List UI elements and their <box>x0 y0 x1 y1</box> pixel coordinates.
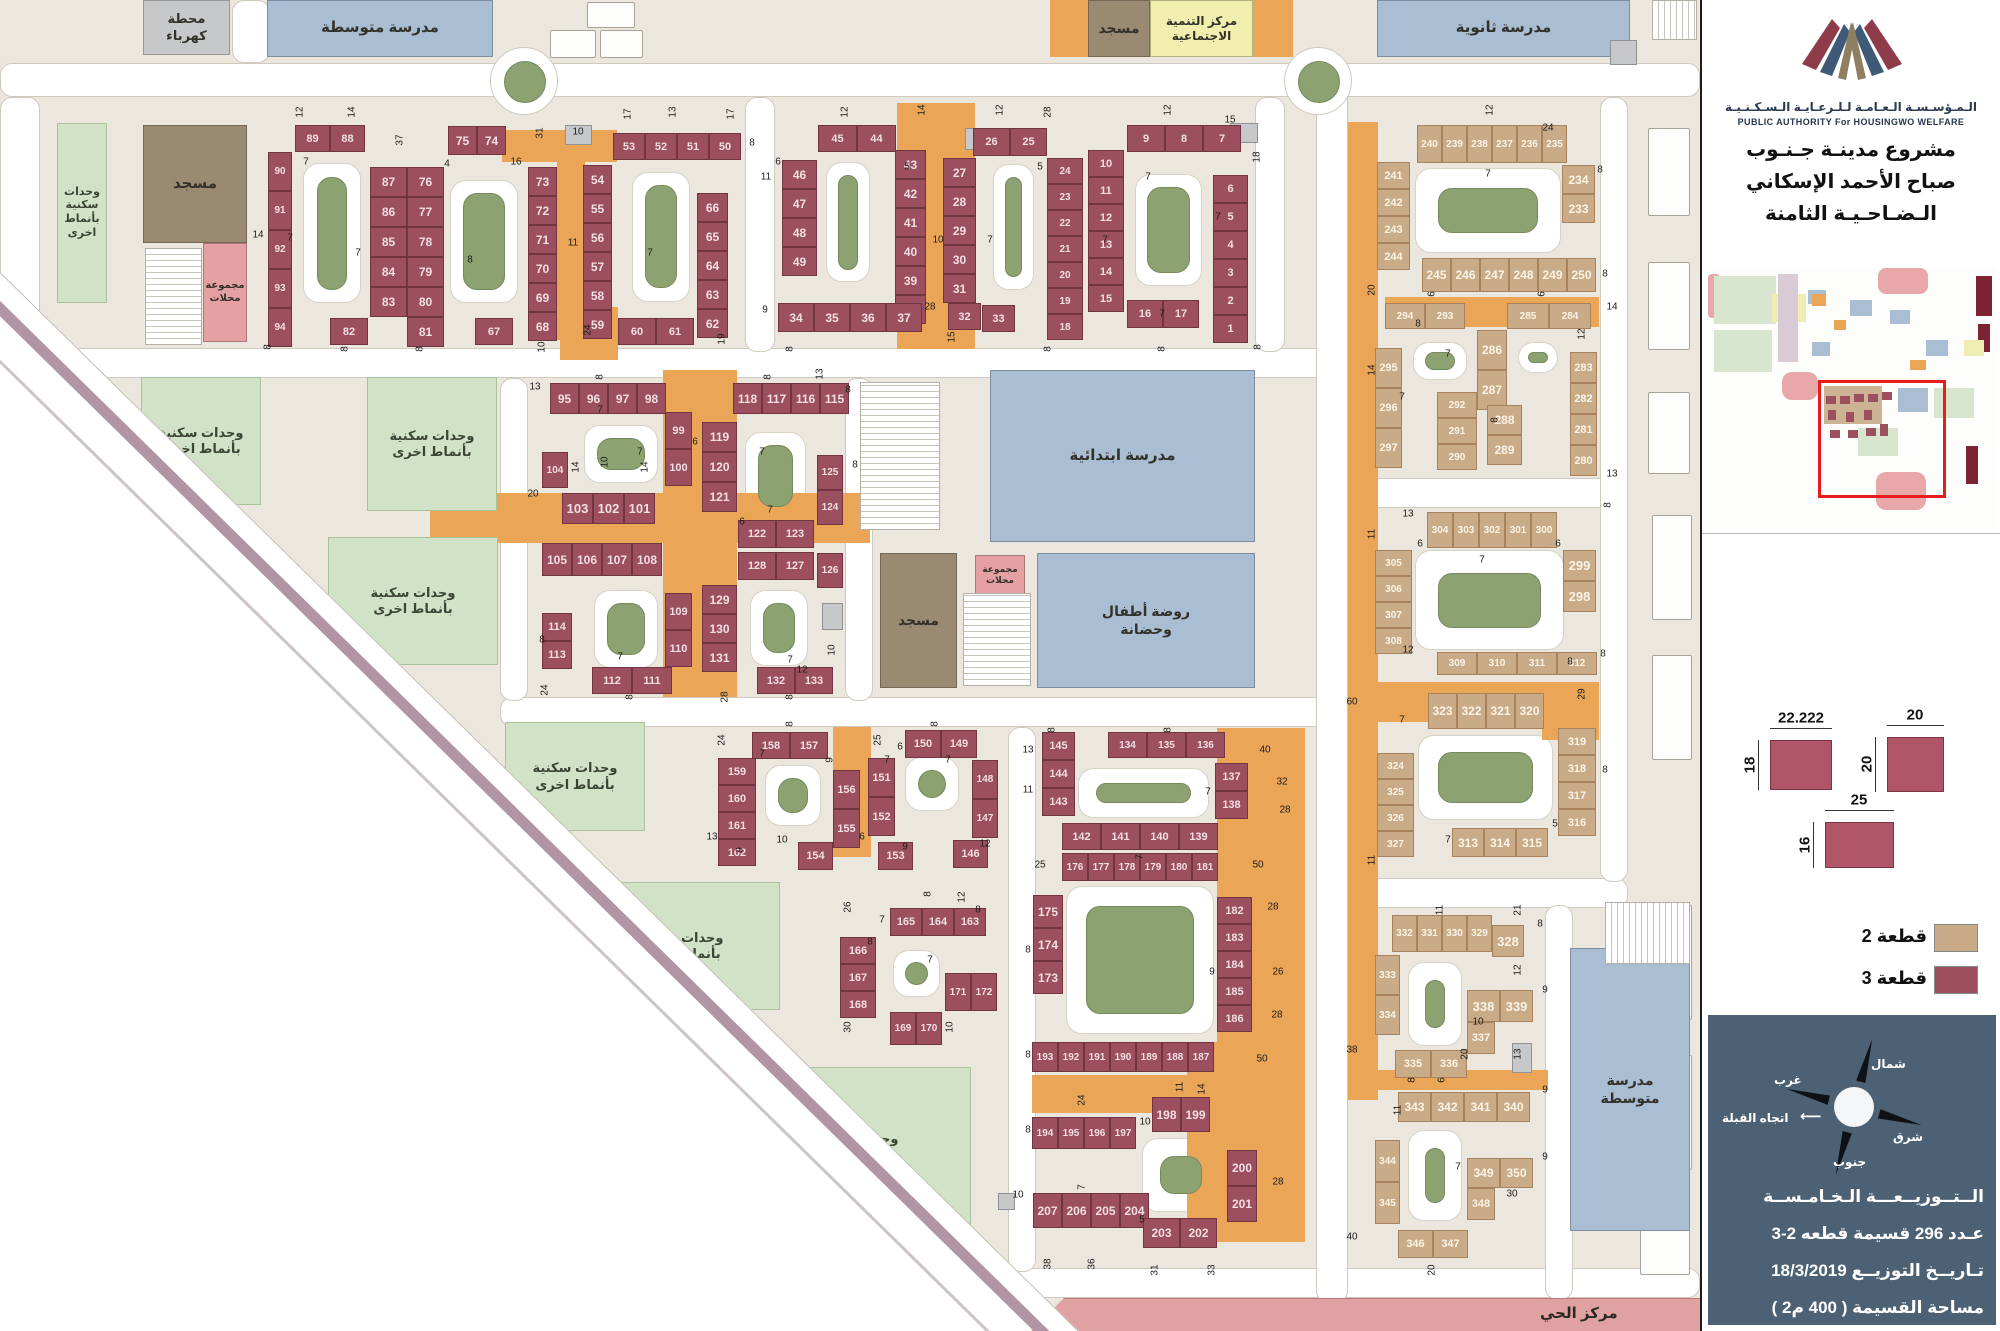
dimension-label: 14 <box>1197 1083 1208 1094</box>
minimap-block <box>1834 320 1846 330</box>
minimap-block <box>1966 446 1978 484</box>
plot-26: 26 <box>973 128 1010 156</box>
overview-minimap[interactable] <box>1708 268 1996 530</box>
plot-164: 164 <box>922 908 954 936</box>
dimension-label: 14 <box>252 230 263 241</box>
plot-40: 40 <box>895 237 926 266</box>
plot-195: 195 <box>1058 1117 1084 1149</box>
dimension-label: 7 <box>884 755 890 766</box>
park-green-icon <box>905 962 928 985</box>
plot-237: 237 <box>1492 125 1517 163</box>
plot-11: 11 <box>1088 177 1124 204</box>
plot-17: 17 <box>1163 300 1199 328</box>
dimension-label: 7 <box>1399 715 1405 726</box>
plot-22: 22 <box>1047 210 1083 236</box>
plot-12: 12 <box>1088 204 1124 231</box>
minimap-block <box>1926 340 1948 356</box>
plot-201: 201 <box>1227 1186 1257 1222</box>
plot-132: 132 <box>757 667 795 694</box>
dimension-label: 11 <box>1175 1082 1186 1092</box>
compass-label-south: جنوب <box>1833 1155 1866 1169</box>
dimension-label: 8 <box>1047 727 1058 733</box>
dimension-label: 7 <box>1445 835 1451 846</box>
dimension-label: 7 <box>945 755 951 766</box>
minimap-block <box>1850 300 1872 316</box>
dimension-label: 12 <box>1402 645 1413 656</box>
dimension-label: 8 <box>1597 165 1603 176</box>
plot-167: 167 <box>840 964 876 991</box>
plot-21: 21 <box>1047 236 1083 262</box>
plot-185: 185 <box>1217 978 1252 1005</box>
plot-39: 39 <box>895 266 926 295</box>
dimension-label: 6 <box>775 157 781 168</box>
plot-329: 329 <box>1467 915 1492 952</box>
roundabout-green-icon <box>1298 61 1340 103</box>
plot-119: 119 <box>702 422 737 452</box>
minimap-block <box>1890 310 1910 324</box>
plot-307: 307 <box>1375 602 1412 628</box>
dim-width-3: 25 <box>1851 792 1868 809</box>
plot-175: 175 <box>1033 895 1063 928</box>
dimension-label: 7 <box>879 915 885 926</box>
plot-238: 238 <box>1467 125 1492 163</box>
plot-109: 109 <box>665 593 692 630</box>
plot-120: 120 <box>702 452 737 482</box>
facility-school: مدرسة ثانوية <box>1377 0 1630 57</box>
plot-79: 79 <box>407 257 444 287</box>
plot-96: 96 <box>579 383 608 414</box>
dimension-label: 7 <box>355 248 361 259</box>
plot-98: 98 <box>637 383 666 414</box>
park-green-icon <box>1160 1156 1202 1194</box>
plot-106: 106 <box>572 543 602 576</box>
plot-314: 314 <box>1484 828 1516 857</box>
park-green-icon <box>607 603 645 655</box>
plot-207: 207 <box>1033 1193 1062 1228</box>
dimension-label: 13 <box>1022 745 1033 756</box>
plot-44: 44 <box>857 125 896 152</box>
plot-321: 321 <box>1486 693 1515 729</box>
plot-192: 192 <box>1058 1042 1084 1072</box>
plot-293: 293 <box>1425 303 1465 329</box>
dimension-label: 8 <box>1253 344 1264 350</box>
dimension-label: 6 <box>1417 539 1423 550</box>
plot-317: 317 <box>1558 782 1596 809</box>
project-title-line-2: صباح الأحمد الإسكاني <box>1702 166 2000 198</box>
plot-10: 10 <box>1088 150 1124 177</box>
plot-346: 346 <box>1398 1230 1433 1258</box>
plot-328: 328 <box>1492 925 1524 957</box>
park-green-icon <box>778 778 808 813</box>
roundabout <box>490 47 558 115</box>
dimension-label: 20 <box>1427 1264 1438 1275</box>
plot-327: 327 <box>1377 831 1414 857</box>
org-name-arabic: الـمـؤسـسـة الـعـامـة لـلـرعـايـة الـسـك… <box>1702 100 2000 114</box>
plot-172: 172 <box>971 973 997 1011</box>
plot-157: 157 <box>790 732 828 759</box>
dimension-label: 8 <box>1415 319 1421 330</box>
plot-341: 341 <box>1464 1092 1497 1122</box>
dimension-label: 8 <box>867 937 873 948</box>
dim-width-2: 20 <box>1907 707 1924 724</box>
plot-75: 75 <box>448 126 477 155</box>
dimension-label: 7 <box>647 248 653 259</box>
dimension-label: 11 <box>568 238 578 249</box>
plot-65: 65 <box>697 222 728 251</box>
plot-71: 71 <box>528 225 557 254</box>
plot-311: 311 <box>1517 652 1557 675</box>
dimension-label: 17 <box>726 108 737 119</box>
compass-south-spike <box>1828 1130 1855 1177</box>
dimension-label: 7 <box>1102 235 1108 246</box>
plot-78: 78 <box>407 227 444 257</box>
dimension-label: 24 <box>540 684 551 695</box>
dimension-label: 12 <box>1513 964 1524 975</box>
facility-mosque: مسجد <box>1088 0 1150 57</box>
minimap-block <box>1812 342 1830 356</box>
dimension-label: 38 <box>1346 1045 1357 1056</box>
plot-147: 147 <box>972 799 998 838</box>
plot-239: 239 <box>1442 125 1467 163</box>
plot-200: 200 <box>1227 1150 1257 1186</box>
dimension-label: 12 <box>1577 328 1588 339</box>
plot-124: 124 <box>817 490 843 525</box>
utility-box <box>1610 40 1637 65</box>
park-green-icon <box>1086 906 1194 1014</box>
dimension-label: 28 <box>924 302 935 313</box>
street <box>1360 478 1628 508</box>
street <box>1545 905 1573 1300</box>
dimension-label: 8 <box>625 694 636 700</box>
street <box>745 97 775 352</box>
plot-161: 161 <box>718 812 756 839</box>
distribution-date-line: تـاريــخ التوزيــع 18/3/2019 <box>1720 1261 1984 1281</box>
plot-32: 32 <box>948 303 981 330</box>
facility-shops: مجموعةمحلات <box>975 555 1025 595</box>
dimension-label: 14 <box>1367 364 1378 375</box>
dimension-label: 8 <box>1567 657 1573 668</box>
plot-249: 249 <box>1538 258 1567 292</box>
plot-37: 37 <box>886 303 922 332</box>
plot-67: 67 <box>475 318 513 345</box>
plot-245: 245 <box>1422 258 1451 292</box>
dimension-label: 6 <box>1555 539 1561 550</box>
plot-150: 150 <box>905 730 941 758</box>
plot-322: 322 <box>1457 693 1486 729</box>
plot-129: 129 <box>702 585 737 614</box>
plot-246: 246 <box>1451 258 1480 292</box>
plot-105: 105 <box>542 543 572 576</box>
dimension-label: 12 <box>1485 104 1496 115</box>
dimension-label: 13 <box>529 382 540 393</box>
plot-111: 111 <box>632 667 672 694</box>
plot-43: 43 <box>895 150 926 179</box>
plot-102: 102 <box>593 493 624 524</box>
park-green-icon <box>1425 980 1445 1028</box>
park-green-icon <box>1005 177 1022 277</box>
dimension-label: 18 <box>1252 151 1263 162</box>
plot-93: 93 <box>268 269 292 308</box>
dimension-label: 12 <box>840 106 851 117</box>
plot-area-line: مساحة القسيمة ( 400 م2 ) <box>1720 1298 1984 1318</box>
plot-15: 15 <box>1088 285 1124 312</box>
dimension-label: 40 <box>1346 1232 1357 1243</box>
building-outline <box>1648 262 1690 350</box>
plot-324: 324 <box>1377 753 1414 779</box>
park-green-icon <box>1425 1148 1445 1203</box>
minimap-highlight-rect <box>1818 380 1946 498</box>
other-housing-zone: وحدات سكنيةبأنماط اخرى <box>367 377 497 511</box>
dimension-label: 7 <box>1399 392 1405 403</box>
plot-73: 73 <box>528 167 557 196</box>
plot-103: 103 <box>562 493 593 524</box>
dimension-label: 11 <box>1393 1105 1404 1115</box>
plot-330: 330 <box>1442 915 1467 952</box>
plot-184: 184 <box>1217 951 1252 978</box>
building-outline <box>1652 515 1692 620</box>
park-green-icon <box>1096 783 1191 803</box>
plot-104: 104 <box>542 452 568 488</box>
plot-165: 165 <box>890 908 922 936</box>
plot-242: 242 <box>1377 189 1410 216</box>
plot-76: 76 <box>407 167 444 197</box>
plot-34: 34 <box>778 303 814 332</box>
dimension-label: 37 <box>395 134 406 145</box>
facility-mosque: مسجد <box>880 553 957 688</box>
dimension-label: 7 <box>597 405 603 416</box>
dimension-label: 12 <box>1163 104 1174 115</box>
dimension-label: 7 <box>1485 169 1491 180</box>
dimension-label: 8 <box>1602 269 1608 280</box>
dimension-label: 8 <box>1490 417 1501 423</box>
dimension-label: 5 <box>1552 819 1558 830</box>
plot-326: 326 <box>1377 805 1414 831</box>
dimension-label: 8 <box>1025 1050 1031 1061</box>
plot-29: 29 <box>943 216 976 245</box>
plot-181: 181 <box>1192 853 1218 881</box>
plot-174: 174 <box>1033 928 1063 961</box>
legend-label-type3: قطعة 3 <box>1837 968 1927 989</box>
dimension-label: 8 <box>263 344 274 350</box>
legend-swatch-type2 <box>1934 924 1978 952</box>
park-green-icon <box>1147 187 1190 273</box>
dimension-label: 9 <box>902 842 908 853</box>
plot-250: 250 <box>1567 258 1596 292</box>
plot-52: 52 <box>645 133 677 160</box>
plot-139: 139 <box>1179 823 1218 850</box>
plan-sheet: وحداتسكنيةبأنماطاخرىوحدات سكنيةبأنماط اخ… <box>0 0 2000 1331</box>
dim-height-2: 20 <box>1859 756 1876 773</box>
plot-180: 180 <box>1166 853 1192 881</box>
dimension-label: 32 <box>1276 777 1287 788</box>
plot-30: 30 <box>943 245 976 274</box>
authority-logo-icon <box>1792 4 1912 96</box>
plot-348: 348 <box>1467 1188 1495 1220</box>
dimension-label: 8 <box>763 374 774 380</box>
dimension-label: 6 <box>1437 1077 1448 1083</box>
parking-lot <box>145 248 202 345</box>
dimension-label: 12 <box>979 839 990 850</box>
dimension-label: 14 <box>1606 302 1617 313</box>
dimension-label: 33 <box>1207 1264 1218 1275</box>
plot-186: 186 <box>1217 1005 1252 1032</box>
dimension-label: 50 <box>1252 860 1263 871</box>
plot-315: 315 <box>1516 828 1548 857</box>
plot-300: 300 <box>1531 512 1557 548</box>
plot-183: 183 <box>1217 924 1252 951</box>
plot-240: 240 <box>1417 125 1442 163</box>
minimap-block <box>1878 268 1928 294</box>
building-outline <box>1648 392 1690 474</box>
dimension-label: 8 <box>595 374 606 380</box>
dimension-label: 13 <box>815 368 826 379</box>
plot-299: 299 <box>1563 550 1596 581</box>
plot-297: 297 <box>1375 428 1402 468</box>
dimension-label: 7 <box>303 157 309 168</box>
dimension-label: 13 <box>1513 1048 1524 1059</box>
facility-school: مدرسة ابتدائية <box>990 370 1255 542</box>
dimension-label: 14 <box>347 106 358 117</box>
dimension-label: 14 <box>640 461 651 472</box>
plot-36: 36 <box>850 303 886 332</box>
plot-68: 68 <box>528 312 557 341</box>
plot-66: 66 <box>697 193 728 222</box>
plot-152: 152 <box>868 797 895 836</box>
dimension-label: 8 <box>1603 502 1614 508</box>
dimension-label: 8 <box>539 635 545 646</box>
dimension-label: 10 <box>932 235 943 246</box>
plot-135: 135 <box>1147 732 1186 758</box>
plot-188: 188 <box>1162 1042 1188 1072</box>
plot-177: 177 <box>1088 853 1114 881</box>
plot-50: 50 <box>709 133 741 160</box>
dimension-label: 8 <box>1537 919 1543 930</box>
plot-244: 244 <box>1377 243 1410 270</box>
plot-shape-22x18 <box>1770 740 1832 790</box>
dimension-label: 28 <box>1043 106 1054 117</box>
park-green-icon <box>1438 752 1533 803</box>
plot-305: 305 <box>1375 550 1412 576</box>
plot-84: 84 <box>370 257 407 287</box>
service-corridor <box>1348 122 1378 1100</box>
minimap-block <box>1782 372 1818 400</box>
dimension-label: 8 <box>1025 1125 1031 1136</box>
plot-342: 342 <box>1431 1092 1464 1122</box>
plot-61: 61 <box>656 318 694 345</box>
compass-east-spike <box>1877 1106 1924 1133</box>
dimension-label: 29 <box>1577 688 1588 699</box>
plot-143: 143 <box>1042 788 1075 816</box>
dimension-label: 15 <box>1224 115 1235 126</box>
plot-156: 156 <box>833 770 860 809</box>
dimension-label: 30 <box>843 1021 854 1032</box>
dimension-label: 7 <box>637 447 643 458</box>
plot-116: 116 <box>791 383 820 414</box>
dimension-label: 7 <box>987 235 993 246</box>
facility-school: مدرسةمتوسطة <box>1570 948 1690 1231</box>
plot-56: 56 <box>583 223 612 252</box>
plot-191: 191 <box>1084 1042 1110 1072</box>
facility-school: روضة أطفالوحضانة <box>1037 553 1255 688</box>
dimension-label: 9 <box>1542 1152 1548 1163</box>
dimension-label: 11 <box>1435 905 1446 915</box>
dimension-label: 8 <box>923 891 934 897</box>
plot-90: 90 <box>268 152 292 191</box>
plot-198: 198 <box>1152 1097 1181 1132</box>
plot-334: 334 <box>1375 995 1400 1035</box>
dimension-label: 12 <box>995 104 1006 115</box>
dimension-label: 9 <box>825 757 836 763</box>
plot-54: 54 <box>583 165 612 194</box>
dimension-label: 28 <box>1272 1177 1283 1188</box>
plot-298: 298 <box>1563 581 1596 612</box>
plot-58: 58 <box>583 281 612 310</box>
compass-label-west: غرب <box>1774 1073 1802 1087</box>
dimension-label: 8 <box>852 460 858 471</box>
minimap-block <box>1714 276 1776 324</box>
plot-304: 304 <box>1427 512 1453 548</box>
plot-339: 339 <box>1500 990 1533 1022</box>
plot-123: 123 <box>776 520 814 548</box>
plot-121: 121 <box>702 482 737 512</box>
dimension-label: 8 <box>1025 945 1031 956</box>
plot-125: 125 <box>817 455 843 490</box>
dimension-label: 6 <box>739 517 745 528</box>
plot-203: 203 <box>1143 1218 1180 1248</box>
plot-286: 286 <box>1477 330 1507 370</box>
plot-94: 94 <box>268 308 292 347</box>
facility-shops: مجموعةمحلات <box>203 243 247 342</box>
dimension-label: 24 <box>583 324 594 335</box>
dimension-label: 7 <box>927 955 933 966</box>
utility-box <box>822 603 843 630</box>
dimension-label: 25 <box>1034 860 1045 871</box>
plot-49: 49 <box>782 247 817 276</box>
dimension-label: 5 <box>1139 1215 1145 1226</box>
building-outline <box>1652 655 1692 760</box>
plot-42: 42 <box>895 179 926 208</box>
dimension-label: 10 <box>827 644 838 655</box>
dimension-label: 11 <box>1023 785 1033 796</box>
dimension-label: 17 <box>623 108 634 119</box>
dimension-label: 24 <box>717 734 728 745</box>
plot-35: 35 <box>814 303 850 332</box>
plot-312: 312 <box>1557 652 1597 675</box>
dimension-label: 8 <box>785 694 796 700</box>
dimension-label: 14 <box>917 104 928 115</box>
plot-248: 248 <box>1509 258 1538 292</box>
parking-lot <box>963 593 1031 686</box>
dimension-label: 20 <box>1460 1048 1471 1059</box>
dimension-label: 8 <box>1043 346 1054 352</box>
plot-302: 302 <box>1479 512 1505 548</box>
plot-110: 110 <box>665 630 692 667</box>
plot-48: 48 <box>782 218 817 247</box>
dimension-label: 60 <box>1346 697 1357 708</box>
dimension-label: 11 <box>1367 855 1378 865</box>
plot-130: 130 <box>702 614 737 643</box>
compass-rose-icon <box>1834 1087 1874 1127</box>
dimension-label: 6 <box>897 742 903 753</box>
plot-136: 136 <box>1186 732 1225 758</box>
dimension-label: 15 <box>947 331 958 342</box>
plot-197: 197 <box>1110 1117 1136 1149</box>
plot-320: 320 <box>1515 693 1544 729</box>
plot-313: 313 <box>1452 828 1484 857</box>
dimension-label: 8 <box>340 346 351 352</box>
plot-176: 176 <box>1062 853 1088 881</box>
dimension-label: 7 <box>1145 172 1151 183</box>
